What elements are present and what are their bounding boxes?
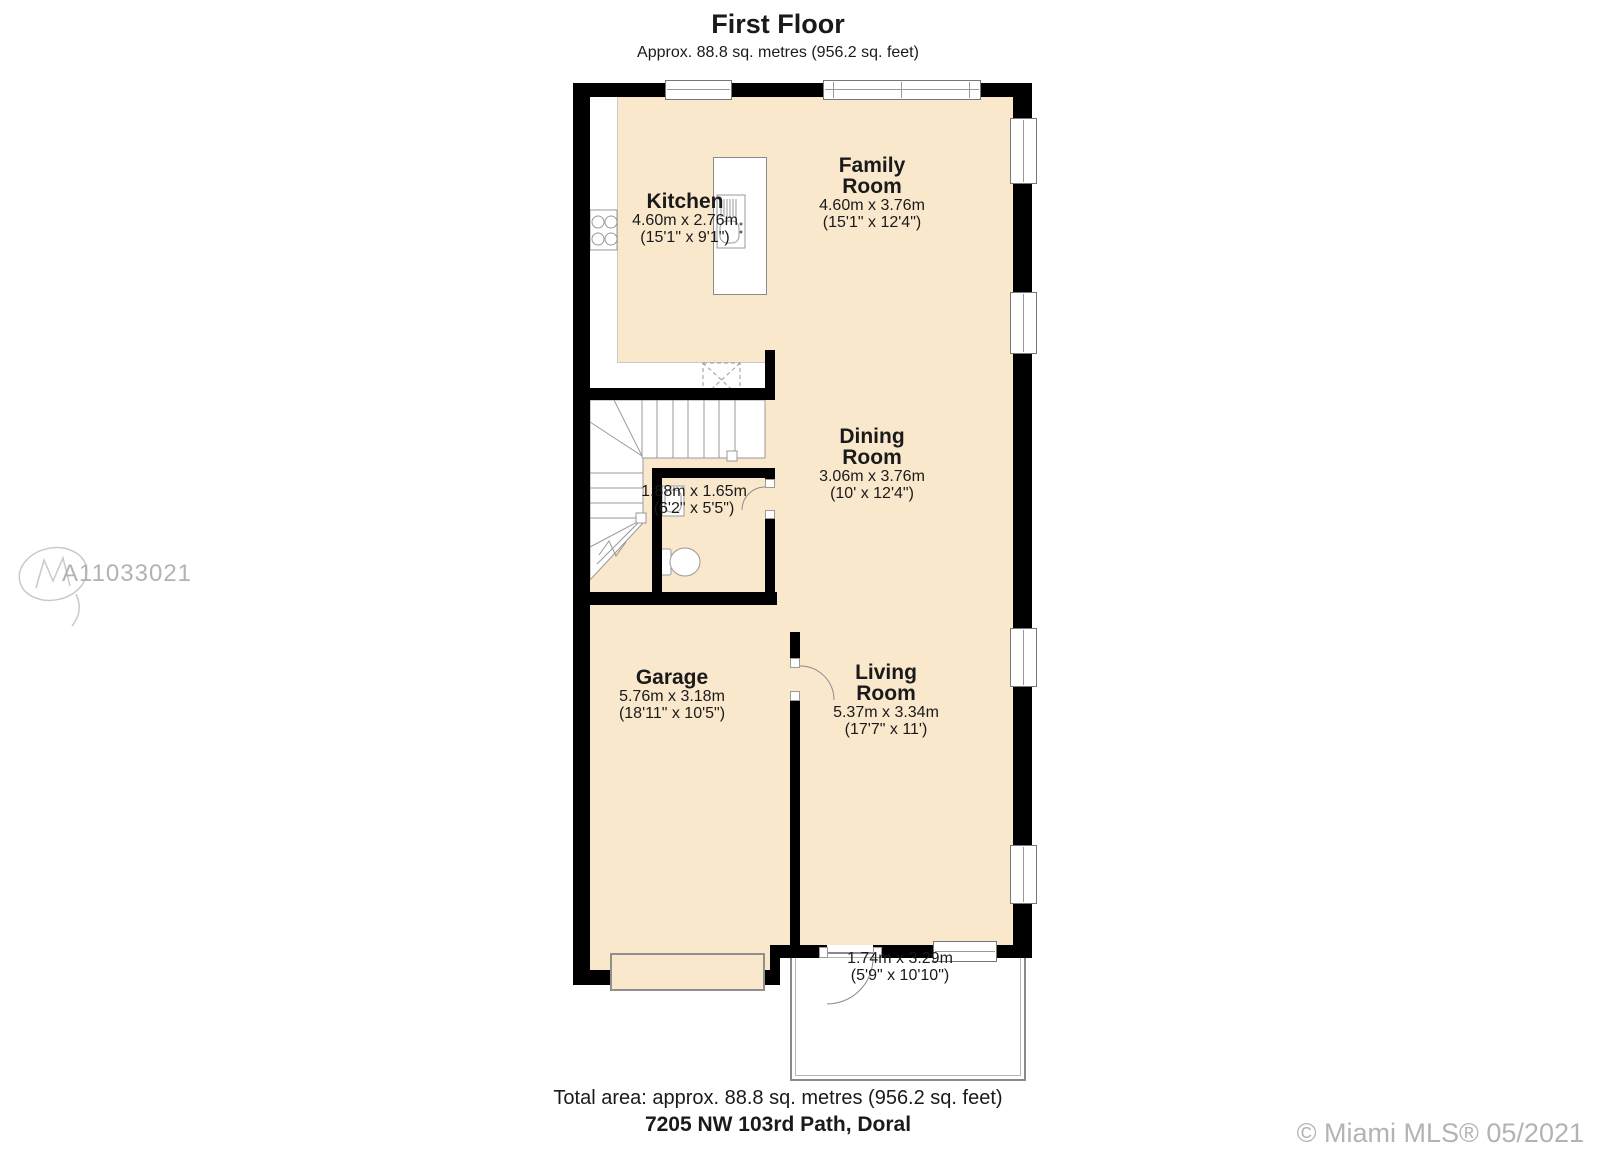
window-kitchen — [665, 80, 732, 100]
window-glass-line — [1023, 120, 1024, 182]
room-dim-imperial: (15'1" x 12'4") — [797, 214, 947, 231]
plan-title: First Floor — [0, 9, 1556, 40]
wall-kitchen-bottom — [573, 388, 775, 400]
window-glass-line — [1023, 294, 1024, 352]
copyright-text: © Miami MLS® 05/2021 — [1297, 1118, 1584, 1149]
room-label-family-room: Family Room 4.60m x 3.76m (15'1" x 12'4"… — [797, 155, 947, 231]
room-dim-imperial: (5'9" x 10'10") — [820, 967, 980, 984]
wall-wc-top — [652, 468, 773, 478]
window-divider — [901, 82, 902, 98]
room-dim-metric: 5.37m x 3.34m — [811, 704, 961, 721]
window-divider — [833, 82, 834, 98]
mls-watermark: A11033021 — [8, 536, 188, 632]
room-label-living-room: Living Room 5.37m x 3.34m (17'7" x 11') — [811, 662, 961, 738]
room-dim-metric: 4.60m x 3.76m — [797, 197, 947, 214]
window-right-4 — [1010, 845, 1037, 904]
room-dim-imperial: (18'11" x 10'5") — [587, 705, 757, 722]
room-name: Kitchen — [636, 191, 734, 212]
floorplan-page: First Floor Approx. 88.8 sq. metres (956… — [0, 0, 1600, 1163]
room-name: Garage — [623, 667, 721, 688]
window-glass-line — [825, 89, 979, 90]
room-name: Dining Room — [823, 426, 921, 468]
total-area-text: Total area: approx. 88.8 sq. metres (956… — [0, 1087, 1556, 1110]
mls-number: A11033021 — [62, 560, 192, 588]
door-jamb — [790, 691, 800, 701]
window-glass-line — [1023, 630, 1024, 685]
window-right-2 — [1010, 292, 1037, 354]
room-dim-metric: 1.88m x 1.65m — [614, 483, 774, 500]
window-right-1 — [1010, 118, 1037, 184]
window-glass-line — [667, 89, 730, 90]
room-dim-imperial: (15'1" x 9'1") — [600, 229, 770, 246]
window-glass-line — [1023, 847, 1024, 902]
wall-wc-right-lower — [765, 510, 775, 605]
room-dim-imperial: (6'2" x 5'5") — [614, 500, 774, 517]
wall-divider-stub — [790, 632, 800, 658]
kitchen-counter-bottom — [617, 362, 765, 389]
room-name: Living Room — [837, 662, 935, 704]
room-name: Family Room — [823, 155, 921, 197]
room-dim-metric: 5.76m x 3.18m — [587, 688, 757, 705]
wall-kitchen-stub — [765, 350, 775, 400]
room-dim-metric: 3.06m x 3.76m — [797, 468, 947, 485]
room-label-garage: Garage 5.76m x 3.18m (18'11" x 10'5") — [587, 667, 757, 722]
window-divider — [969, 82, 970, 98]
room-label-kitchen: Kitchen 4.60m x 2.76m (15'1" x 9'1") — [600, 191, 770, 246]
floorplan-drawing: Kitchen 4.60m x 2.76m (15'1" x 9'1") Fam… — [573, 83, 1032, 985]
wall-right — [1013, 83, 1032, 958]
wall-garage-living-divider — [790, 700, 800, 945]
room-dim-metric: 4.60m x 2.76m — [600, 212, 770, 229]
room-label-wc: 1.88m x 1.65m (6'2" x 5'5") — [614, 483, 774, 517]
garage-door — [610, 953, 765, 991]
window-right-3 — [1010, 628, 1037, 687]
wall-bottom-step — [770, 945, 780, 985]
window-family — [823, 80, 981, 100]
door-jamb — [790, 658, 800, 668]
wall-left — [573, 83, 590, 985]
room-label-dining-room: Dining Room 3.06m x 3.76m (10' x 12'4") — [797, 426, 947, 502]
room-dim-metric: 1.74m x 3.29m — [820, 950, 980, 967]
room-label-patio: 1.74m x 3.29m (5'9" x 10'10") — [820, 950, 980, 984]
wall-wc-bottom — [573, 592, 777, 605]
room-dim-imperial: (17'7" x 11') — [811, 721, 961, 738]
plan-subtitle: Approx. 88.8 sq. metres (956.2 sq. feet) — [0, 44, 1556, 62]
room-dim-imperial: (10' x 12'4") — [797, 485, 947, 502]
